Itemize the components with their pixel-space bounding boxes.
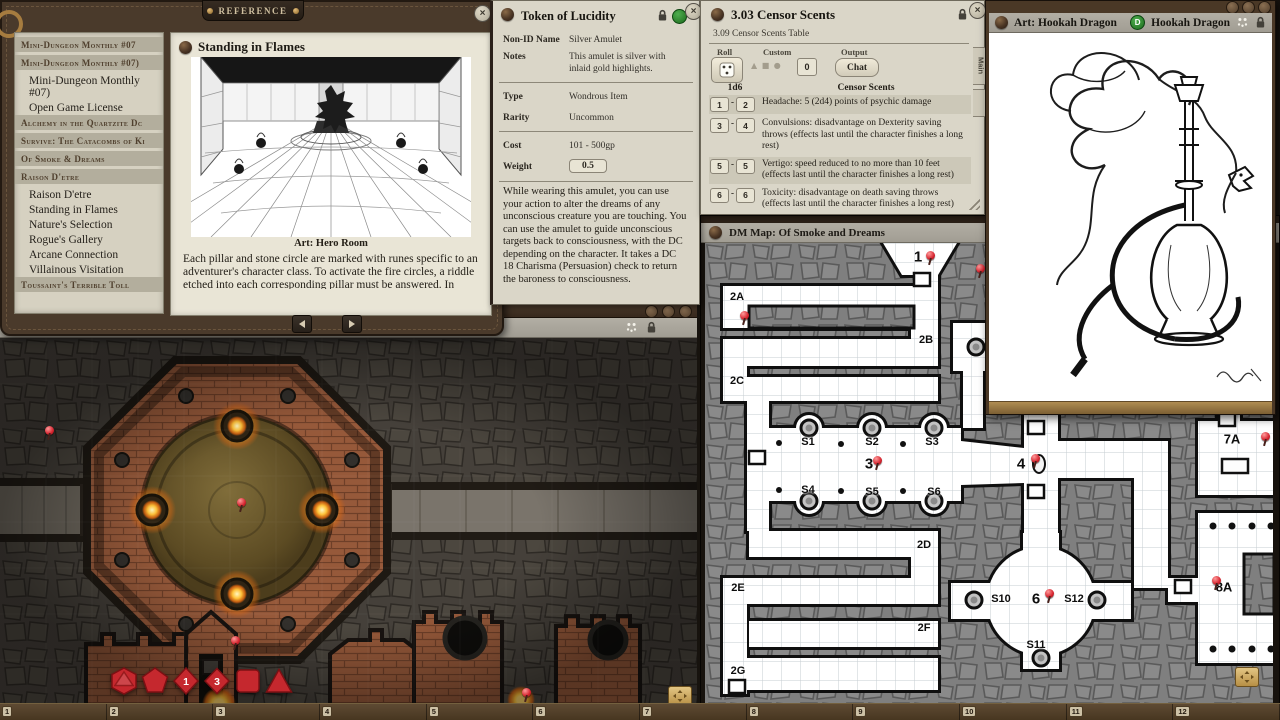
token-titlebar[interactable] — [501, 8, 514, 26]
svg-text:3: 3 — [214, 676, 220, 688]
window-close-button[interactable] — [1258, 1, 1271, 14]
hotbar-slot-number: 12 — [1175, 706, 1189, 717]
image-window-frame-bottom — [989, 401, 1272, 414]
map-room-label: 4 — [1017, 456, 1025, 473]
hotbar-slot[interactable]: 6 — [533, 704, 640, 720]
field-row: Weight 0.5 — [493, 156, 699, 175]
hero-room-illustration — [191, 57, 471, 237]
window-menu-button[interactable] — [645, 305, 658, 318]
map-room-label: S10 — [991, 593, 1011, 605]
hotbar-slot[interactable]: 11 — [1067, 704, 1174, 720]
hotbar-slot[interactable]: 8 — [747, 704, 854, 720]
custom-label: Custom — [763, 47, 791, 57]
hotbar-slot-number: 4 — [322, 706, 332, 717]
roll-range-high: 2 — [736, 97, 755, 112]
range-separator: - — [730, 97, 735, 107]
range-separator: - — [730, 118, 735, 128]
table-window-censor-scents: Main 3.03 Censor Scents × 3.09 Censor Sc… — [700, 0, 985, 215]
hotbar-slot[interactable]: 4 — [320, 704, 427, 720]
map-room-label: 7A — [1224, 432, 1241, 447]
column-header-censor-scents: Censor Scents — [761, 83, 971, 93]
range-separator: - — [730, 188, 735, 198]
reference-page: Standing in Flames — [170, 32, 492, 316]
d12-die[interactable] — [141, 667, 169, 700]
map-room-label: S1 — [801, 436, 814, 448]
map-pin-icon[interactable] — [873, 456, 882, 465]
map-room-label: 2D — [917, 539, 931, 551]
field-value[interactable]: Uncommon — [569, 112, 689, 124]
field-value[interactable]: This amulet is silver with inlaid gold h… — [569, 51, 689, 75]
reference-entry-link[interactable]: Arcane Connection — [15, 247, 163, 262]
art-caption: Art: Hero Room — [171, 238, 491, 249]
hotbar[interactable]: 123456789101112 — [0, 703, 1280, 720]
reference-entry-link[interactable]: Standing in Flames — [15, 202, 163, 217]
die-icon — [718, 61, 736, 79]
divider — [499, 82, 693, 83]
roll-range-high: 5 — [736, 159, 755, 174]
field-label: Rarity — [503, 112, 569, 124]
item-window-title: Token of Lucidity — [521, 9, 616, 24]
map-room-label: S3 — [925, 436, 938, 448]
mask-icon[interactable] — [625, 322, 638, 333]
map-room-label: 3 — [865, 456, 873, 473]
close-button[interactable]: × — [474, 5, 491, 22]
censor-table-row: 5-5Vertigo: speed reduced to no more tha… — [709, 157, 971, 184]
lock-icon[interactable] — [957, 8, 968, 21]
roll-range-high: 6 — [736, 188, 755, 203]
hotbar-slot-number: 5 — [429, 706, 439, 717]
window-close-button[interactable] — [679, 305, 692, 318]
map-room-label: 6 — [1032, 591, 1040, 608]
output-label: Output — [841, 47, 867, 57]
image-title: Art: Hookah Dragon — [1014, 17, 1117, 29]
window-menu-button[interactable] — [1226, 1, 1239, 14]
map-room-label: 1 — [914, 249, 922, 266]
table-header-row: 1d6 Censor Scents — [709, 83, 971, 93]
table-subtitle: 3.09 Censor Scents Table — [713, 29, 809, 39]
battle-map-canvas[interactable] — [0, 338, 697, 710]
item-fields: Non-ID Name Silver Amulet Notes This amu… — [493, 31, 699, 286]
field-label: Weight — [503, 159, 569, 173]
window-help-button[interactable] — [1242, 1, 1255, 14]
roll-range-low: 6 — [710, 188, 729, 203]
hotbar-slot[interactable]: 1 — [0, 704, 107, 720]
table-window-title: 3.03 Censor Scents — [731, 7, 835, 23]
lock-icon[interactable] — [657, 9, 668, 22]
reference-entry-link[interactable]: Rogue's Gallery — [15, 232, 163, 247]
map-room-label: S11 — [1027, 639, 1046, 651]
hotbar-slot[interactable]: 9 — [853, 704, 960, 720]
column-header-1d6: 1d6 — [709, 83, 761, 93]
page-title-row: Standing in Flames — [179, 39, 305, 55]
link-icon[interactable] — [995, 16, 1008, 29]
censor-effect-text: Toxicity: disadvantage on death saving t… — [756, 188, 971, 211]
page-body-text: Each pillar and stone circle are marked … — [183, 253, 479, 289]
field-value[interactable]: Wondrous Item — [569, 91, 689, 103]
image-window-frame — [986, 1, 1275, 13]
hotbar-slot-number: 1 — [2, 706, 12, 717]
field-value[interactable]: 101 - 500gp — [569, 140, 689, 152]
link-icon[interactable] — [709, 226, 722, 239]
hotbar-slot-number: 2 — [109, 706, 119, 717]
map-pin-icon[interactable] — [926, 251, 935, 260]
hotbar-slot-number: 9 — [855, 706, 865, 717]
reference-group-header: Mini-Dungeon Monthly #07) — [15, 55, 163, 70]
stud-icon — [207, 8, 213, 14]
field-label: Non-ID Name — [503, 34, 569, 46]
map-room-label: S5 — [865, 486, 878, 498]
battle-map-art — [0, 338, 697, 710]
censor-effect-text: Convulsions: disadvantage on Dexterity s… — [756, 118, 971, 153]
map-room-label: 2B — [919, 334, 933, 346]
dm-map-title: DM Map: Of Smoke and Dreams — [729, 227, 885, 239]
map-room-label: S4 — [801, 484, 814, 496]
reference-entry-link[interactable]: Mini-Dungeon Monthly #07) — [15, 73, 163, 100]
weight-input[interactable]: 0.5 — [569, 159, 607, 173]
field-row: Notes This amulet is silver with inlaid … — [493, 48, 699, 77]
map-pin-icon[interactable] — [976, 264, 985, 273]
reference-entry-link[interactable]: Villainous Visitation — [15, 262, 163, 277]
reference-entry-link[interactable]: Nature's Selection — [15, 217, 163, 232]
resize-handle[interactable] — [1235, 667, 1259, 687]
map-pin-icon[interactable] — [1031, 454, 1040, 463]
lock-icon[interactable] — [646, 321, 657, 334]
roll-dice-button[interactable] — [711, 57, 743, 83]
map-room-label: 2G — [731, 665, 746, 677]
field-row: Cost 101 - 500gp — [493, 137, 699, 154]
divider — [709, 43, 969, 44]
svg-text:1: 1 — [183, 676, 189, 688]
map-pin-icon[interactable] — [237, 498, 246, 507]
hotbar-slot-number: 7 — [642, 706, 652, 717]
stud-icon — [293, 8, 299, 14]
arrow-right-icon — [349, 320, 355, 328]
field-row: Rarity Uncommon — [493, 109, 699, 126]
custom-count-input[interactable]: 0 — [797, 58, 817, 76]
page-title: Standing in Flames — [198, 39, 305, 55]
d10-die[interactable]: 1 — [172, 667, 200, 700]
hotbar-slot[interactable]: 2 — [107, 704, 214, 720]
arrow-left-icon — [299, 320, 305, 328]
roll-range-low: 3 — [710, 118, 729, 133]
map-pin-icon[interactable] — [1212, 576, 1221, 585]
hotbar-slot[interactable]: 5 — [427, 704, 534, 720]
field-label: Notes — [503, 51, 569, 75]
d4-die[interactable] — [265, 667, 293, 700]
link-icon[interactable] — [711, 8, 724, 21]
map-pin-icon[interactable] — [1045, 589, 1054, 598]
custom-dice-icons[interactable]: ▲ ■ ● — [751, 61, 782, 70]
hotbar-slot-number: 11 — [1069, 706, 1083, 717]
hotbar-slot-number: 6 — [535, 706, 545, 717]
hotbar-slot-number: 10 — [962, 706, 976, 717]
map-room-label: S6 — [927, 486, 940, 498]
reference-window: REFERENCE × Mini-Dungeon Monthly #07Mini… — [0, 0, 504, 336]
hotbar-slot[interactable]: 10 — [960, 704, 1067, 720]
roll-range-low: 1 — [710, 97, 729, 112]
censor-table-row: 3-4Convulsions: disadvantage on Dexterit… — [709, 116, 971, 155]
item-description[interactable]: While wearing this amulet, you can use y… — [503, 186, 689, 286]
map-room-label: 2A — [730, 291, 744, 303]
roll-label: Roll — [717, 47, 732, 57]
link-icon[interactable] — [501, 8, 514, 21]
field-row: Type Wondrous Item — [493, 88, 699, 105]
roll-range-high: 4 — [736, 118, 755, 133]
reference-group-header: Of Smoke & Dreams — [15, 151, 163, 166]
field-label: Type — [503, 91, 569, 103]
field-row: Non-ID Name Silver Amulet — [493, 31, 699, 48]
map-pin-icon[interactable] — [231, 636, 240, 645]
hotbar-slot[interactable]: 3 — [213, 704, 320, 720]
mask-icon[interactable] — [1236, 17, 1249, 28]
reference-group-header: Toussaint's Terrible Toll — [15, 277, 163, 292]
field-value[interactable]: Silver Amulet — [569, 34, 689, 46]
censor-table-row: 6-6Toxicity: disadvantage on death savin… — [709, 186, 971, 213]
map-pin-icon[interactable] — [522, 688, 531, 697]
reference-banner-label: REFERENCE — [218, 6, 287, 16]
lock-icon[interactable] — [1255, 16, 1266, 29]
d8-die[interactable]: 3 — [203, 667, 231, 700]
reference-group-header: Mini-Dungeon Monthly #07 — [15, 37, 163, 52]
divider — [499, 131, 693, 132]
table-body: 1-2Headache: 5 (2d4) points of psychic d… — [709, 95, 971, 215]
map-pin-icon[interactable] — [740, 311, 749, 320]
censor-table-row: 1-2Headache: 5 (2d4) points of psychic d… — [709, 95, 971, 114]
reference-index: Mini-Dungeon Monthly #07Mini-Dungeon Mon… — [14, 32, 164, 314]
battle-map-window — [0, 305, 697, 720]
map-pin-icon[interactable] — [45, 426, 54, 435]
dice-tray[interactable]: 13 — [110, 660, 293, 700]
image-window-hookah-dragon: Art: Hookah Dragon D Hookah Dragon — [985, 0, 1276, 415]
roll-range-low: 5 — [710, 159, 729, 174]
hotbar-slot-number: 8 — [749, 706, 759, 717]
map-room-label: S2 — [865, 436, 878, 448]
hookah-dragon-illustration[interactable] — [989, 33, 1272, 401]
hotbar-slot[interactable]: 7 — [640, 704, 747, 720]
window-help-button[interactable] — [662, 305, 675, 318]
range-separator: - — [730, 159, 735, 169]
divider — [499, 181, 693, 182]
reference-group-header: Raison D'etre — [15, 169, 163, 184]
link-icon[interactable] — [179, 41, 192, 54]
image-titlebar[interactable]: Art: Hookah Dragon D Hookah Dragon — [989, 13, 1272, 33]
reference-group-header: Survive: The Catacombs of Ki — [15, 133, 163, 148]
field-label: Cost — [503, 140, 569, 152]
shared-token-icon[interactable]: D — [1130, 15, 1145, 30]
reference-banner[interactable]: REFERENCE — [202, 0, 304, 21]
fantasy-grounds-desktop: DM Map: Of Smoke and Dreams — [0, 0, 1280, 720]
item-window-token-of-lucidity: Token of Lucidity × Non-ID Name Silver A… — [490, 0, 700, 305]
censor-effect-text: Headache: 5 (2d4) points of psychic dama… — [756, 97, 971, 109]
map-pin-icon[interactable] — [1261, 432, 1270, 441]
censor-effect-text: Vertigo: speed reduced to no more than 1… — [756, 159, 971, 182]
reference-group-header: Alchemy in the Quartzite Dc — [15, 115, 163, 130]
prev-page-button[interactable] — [292, 315, 312, 333]
token-name: Hookah Dragon — [1151, 17, 1230, 29]
reference-entry-link[interactable]: Open Game License — [15, 100, 163, 115]
chat-output-button[interactable]: Chat — [835, 58, 879, 77]
reference-entry-link[interactable]: Raison D'etre — [15, 187, 163, 202]
hotbar-slot-number: 3 — [215, 706, 225, 717]
map-room-label: 2F — [918, 622, 931, 634]
map-room-label: 2E — [731, 582, 744, 594]
map-room-label: S12 — [1064, 593, 1084, 605]
map-room-label: 2C — [730, 375, 744, 387]
close-button[interactable]: × — [969, 2, 986, 19]
hotbar-slot[interactable]: 12 — [1173, 704, 1280, 720]
d6-die[interactable] — [234, 667, 262, 700]
d20-die[interactable] — [110, 667, 138, 700]
next-page-button[interactable] — [342, 315, 362, 333]
